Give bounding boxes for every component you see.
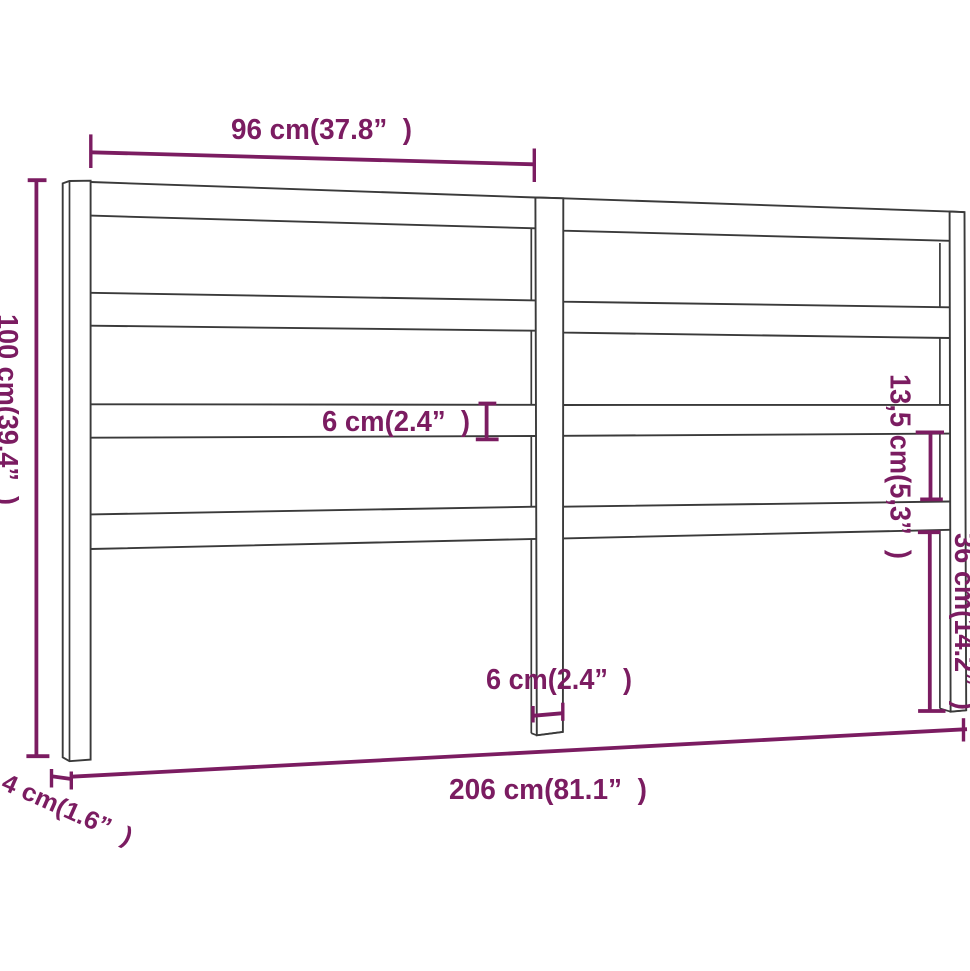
svg-text:100 cm(39.4” ): 100 cm(39.4” ) bbox=[0, 314, 23, 505]
svg-text:96 cm(37.8” ): 96 cm(37.8” ) bbox=[231, 114, 412, 146]
svg-text:36 cm(14.2” ): 36 cm(14.2” ) bbox=[948, 533, 970, 710]
svg-text:6 cm(2.4” ): 6 cm(2.4” ) bbox=[322, 406, 470, 438]
svg-text:4 cm(1.6” ): 4 cm(1.6” ) bbox=[0, 768, 137, 851]
svg-text:13,5 cm(5,3” ): 13,5 cm(5,3” ) bbox=[884, 374, 916, 559]
svg-text:206 cm(81.1” ): 206 cm(81.1” ) bbox=[449, 774, 647, 806]
svg-text:6 cm(2.4” ): 6 cm(2.4” ) bbox=[486, 664, 632, 696]
